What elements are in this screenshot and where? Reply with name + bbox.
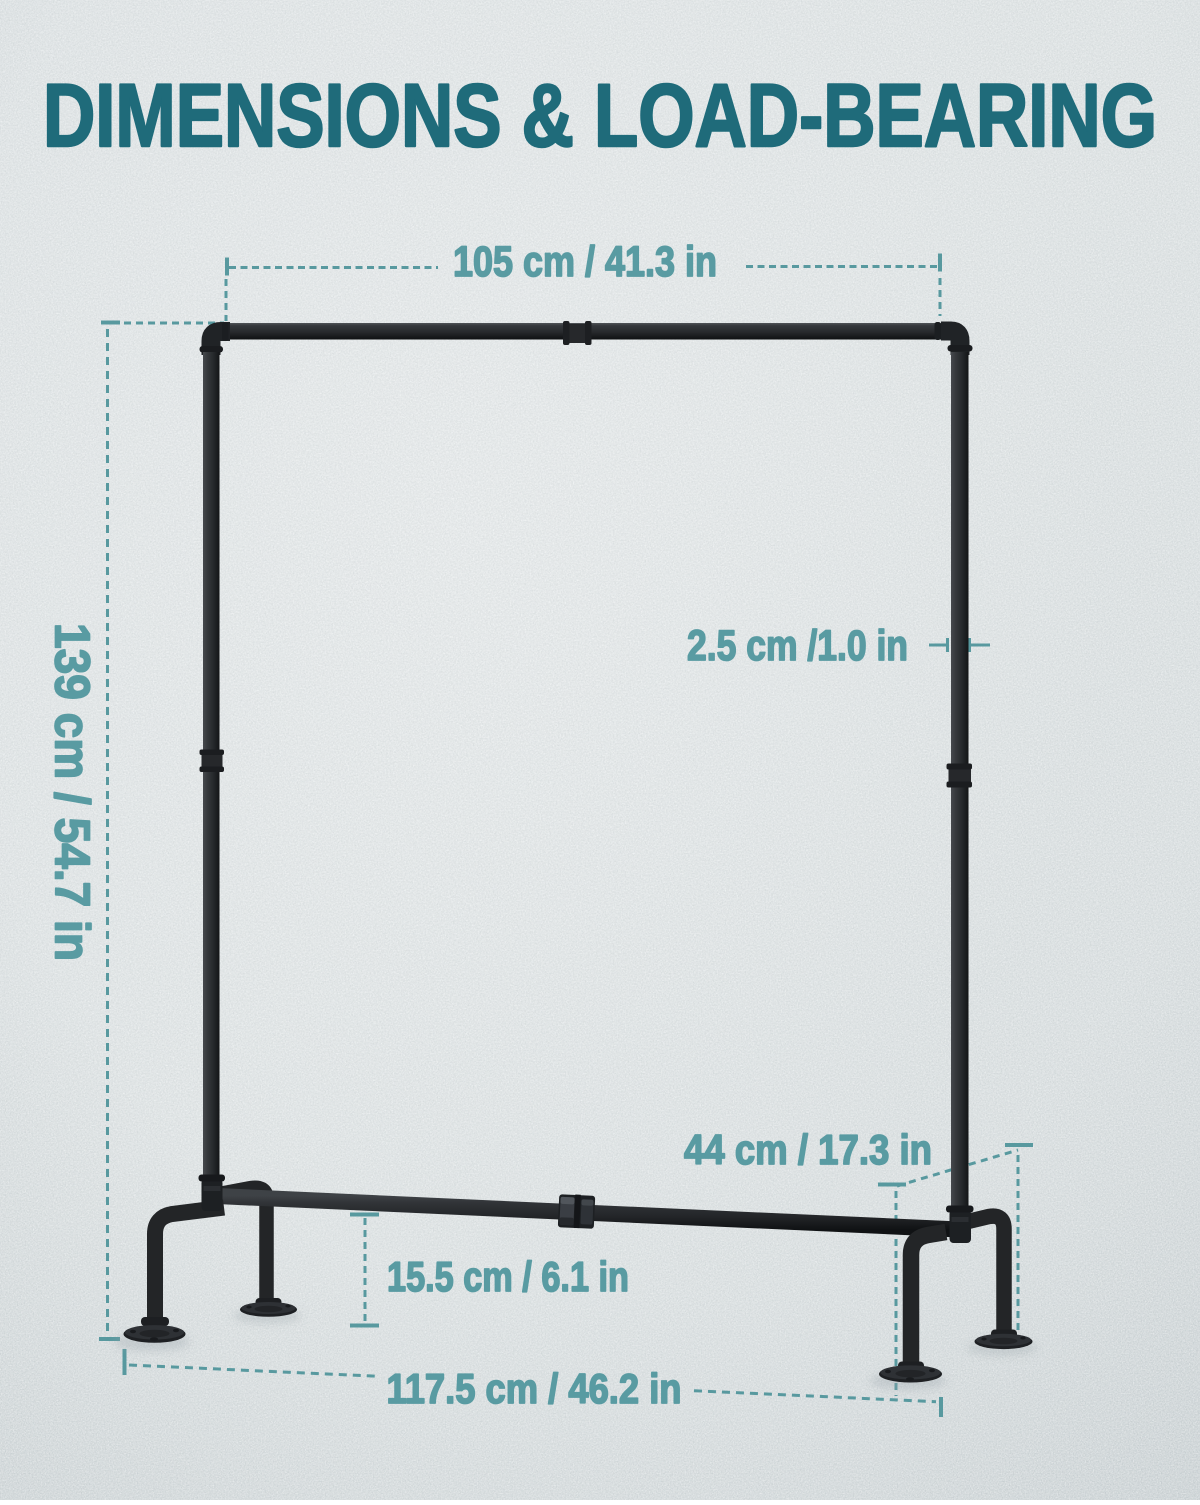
svg-text:139 cm / 54.7 in: 139 cm / 54.7 in	[45, 623, 100, 961]
svg-text:117.5 cm / 46.2 in: 117.5 cm / 46.2 in	[387, 1365, 682, 1412]
svg-text:15.5 cm / 6.1 in: 15.5 cm / 6.1 in	[387, 1253, 629, 1300]
svg-text:44 cm / 17.3 in: 44 cm / 17.3 in	[684, 1126, 932, 1173]
svg-text:105 cm / 41.3 in: 105 cm / 41.3 in	[453, 239, 717, 286]
svg-text:DIMENSIONS & LOAD-BEARING: DIMENSIONS & LOAD-BEARING	[43, 65, 1157, 165]
svg-text:2.5 cm /1.0 in: 2.5 cm /1.0 in	[687, 623, 908, 670]
